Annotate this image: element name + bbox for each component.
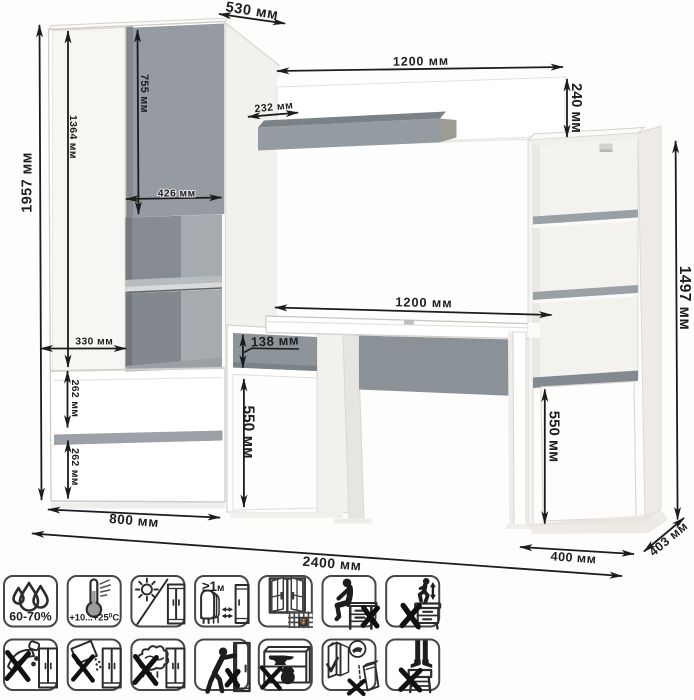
svg-text:550 мм: 550 мм [239, 405, 256, 458]
svg-text:21: 21 [299, 620, 307, 627]
svg-text:60-70%: 60-70% [9, 610, 51, 624]
svg-text:755 мм: 755 мм [138, 74, 150, 113]
svg-text:550 мм: 550 мм [546, 411, 563, 462]
svg-text:1957 мм: 1957 мм [19, 152, 35, 213]
svg-text:240 мм: 240 мм [568, 83, 584, 133]
svg-text:+10...+250C: +10...+250C [69, 613, 119, 623]
svg-text:262 мм: 262 мм [69, 380, 81, 418]
svg-text:1497 мм: 1497 мм [676, 266, 693, 331]
svg-text:1364 мм: 1364 мм [67, 115, 79, 159]
svg-text:262 мм: 262 мм [69, 448, 81, 486]
svg-text:1200 мм: 1200 мм [395, 294, 453, 310]
svg-text:138 мм: 138 мм [251, 332, 300, 349]
svg-text:330 мм: 330 мм [75, 337, 113, 348]
svg-text:426 мм: 426 мм [158, 189, 196, 200]
svg-text:1200 мм: 1200 мм [393, 54, 449, 69]
